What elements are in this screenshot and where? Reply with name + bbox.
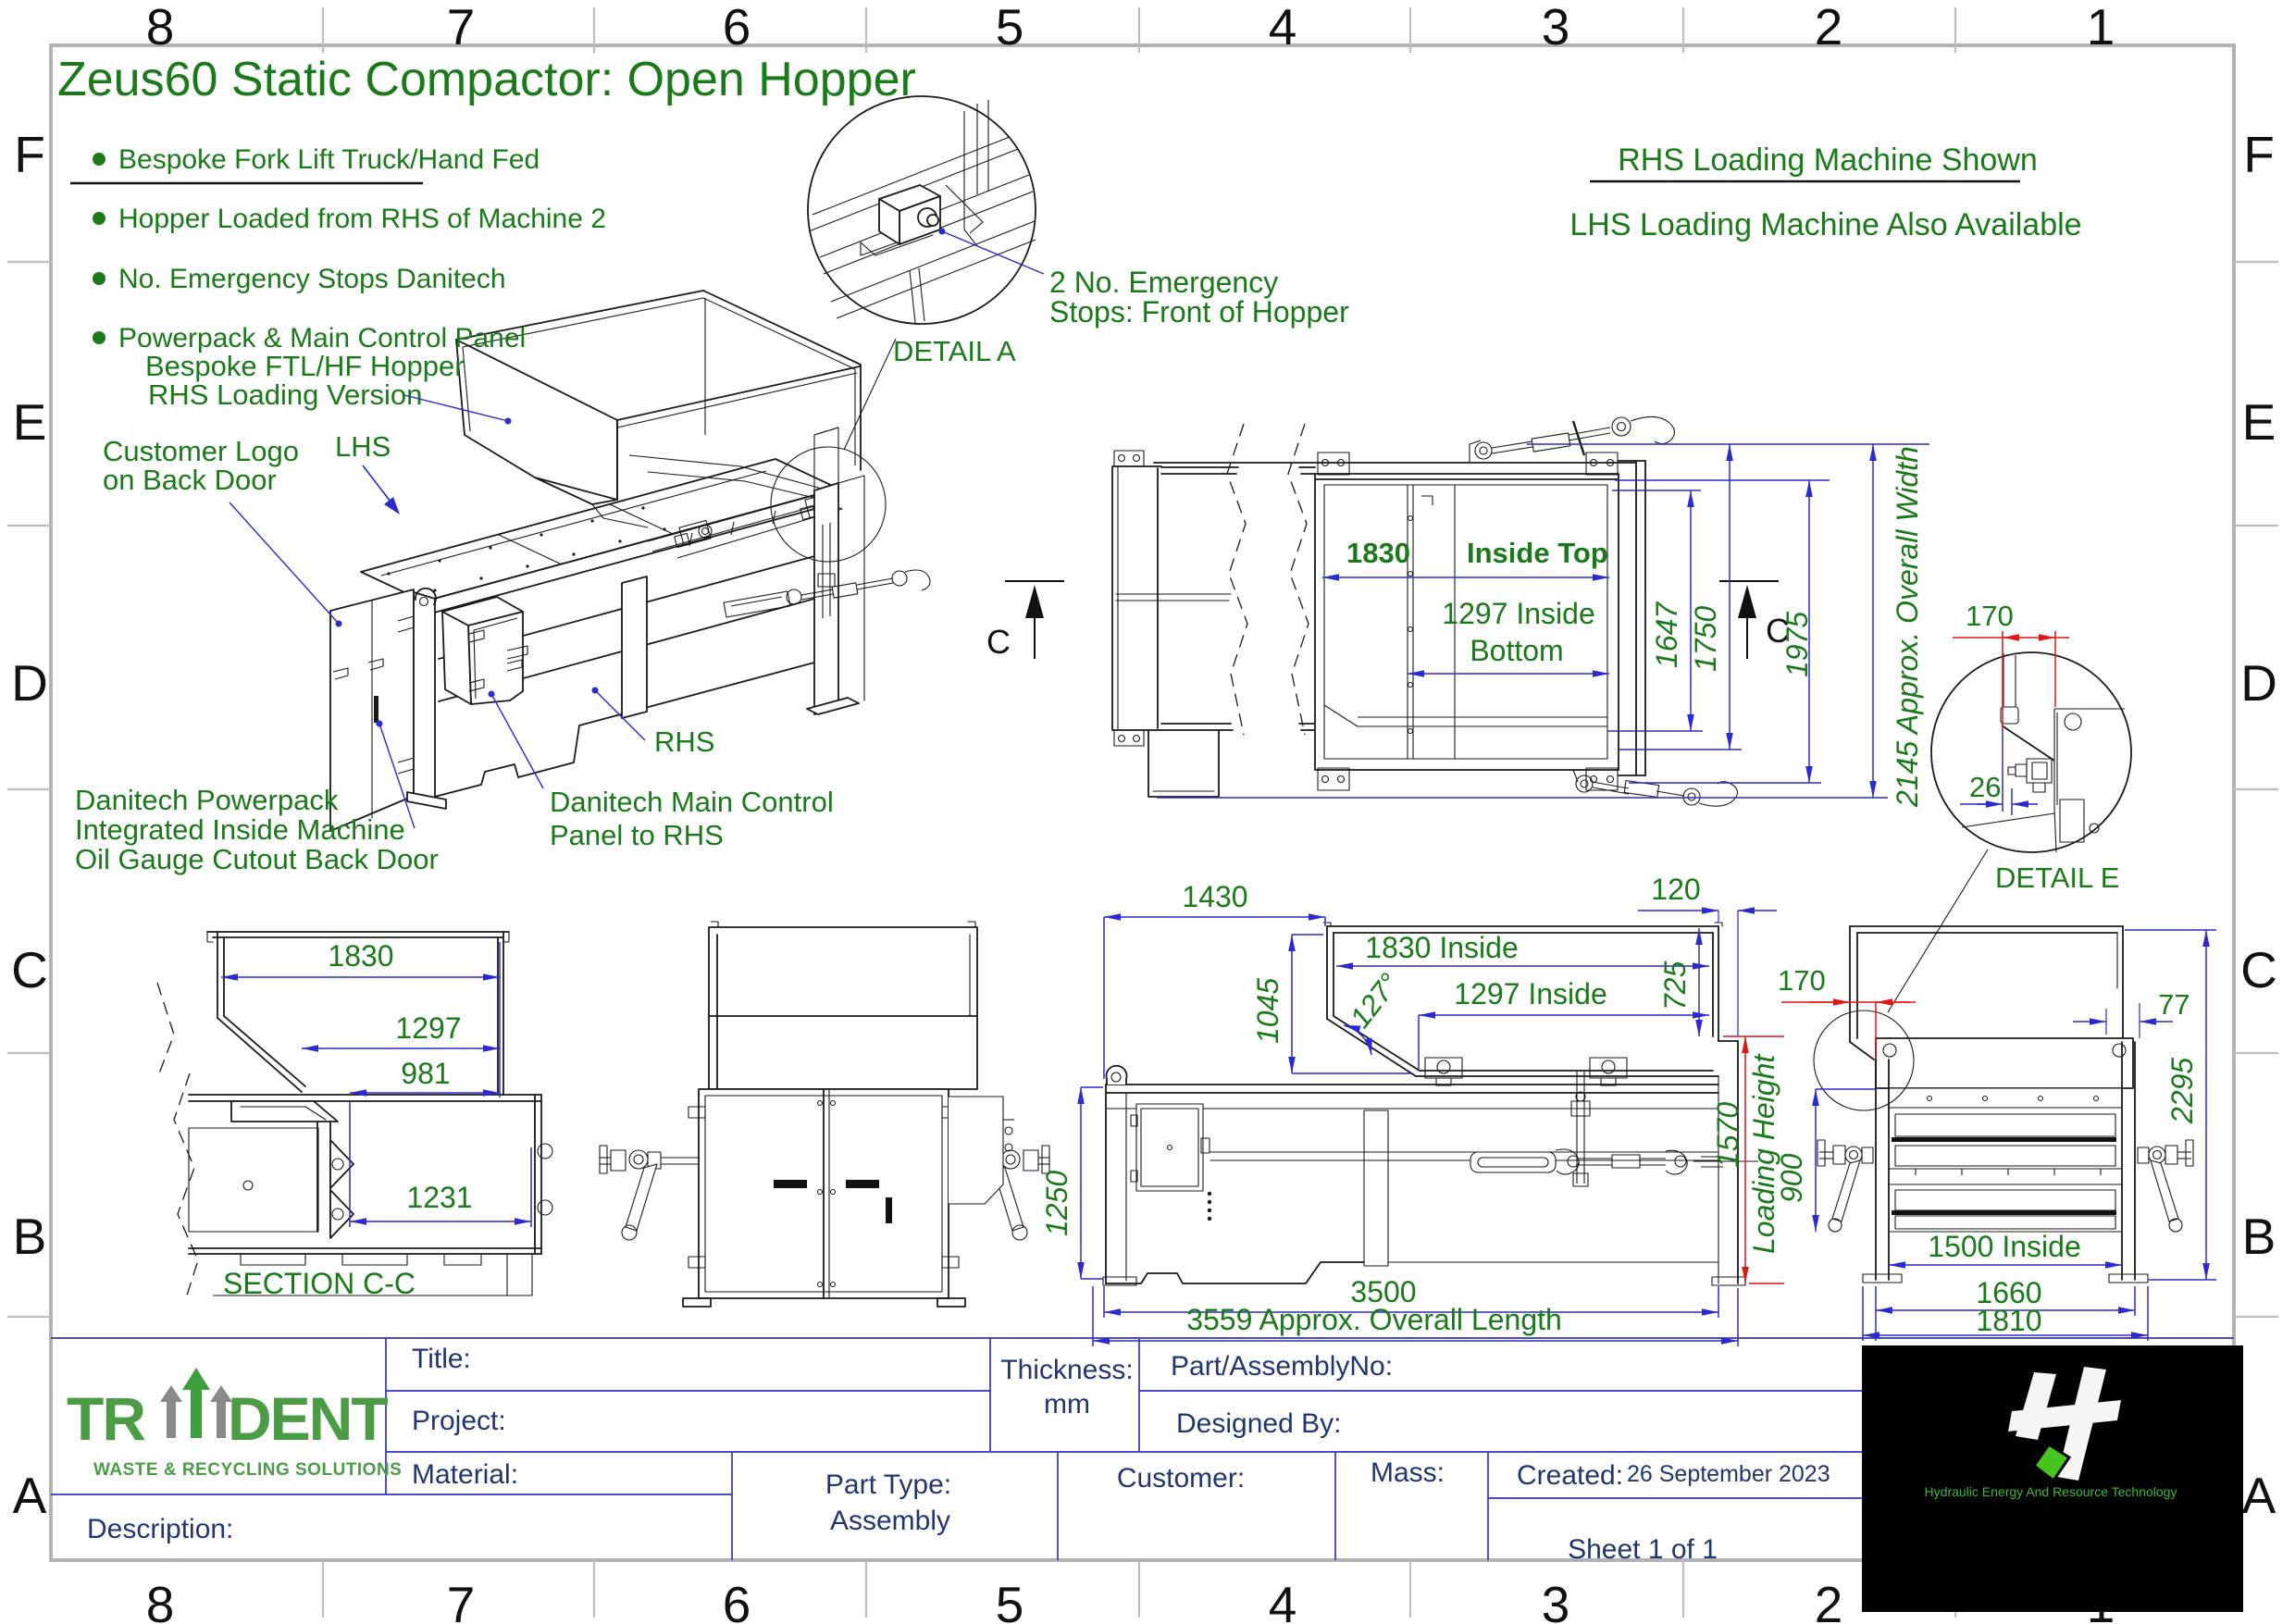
svg-text:1430: 1430: [1182, 880, 1247, 913]
svg-text:4: 4: [1269, 1576, 1297, 1624]
svg-text:Assembly: Assembly: [830, 1506, 950, 1536]
svg-text:Zeus60 Static Compactor: Open: Zeus60 Static Compactor: Open Hopper: [57, 53, 916, 106]
svg-text:B: B: [13, 1208, 47, 1265]
svg-text:Project:: Project:: [412, 1406, 506, 1436]
svg-text:No. Emergency Stops Danitech: No. Emergency Stops Danitech: [118, 264, 506, 294]
svg-text:725: 725: [1658, 961, 1692, 1010]
svg-text:1231: 1231: [406, 1181, 472, 1214]
svg-text:Hopper Loaded from RHS of Mach: Hopper Loaded from RHS of Machine 2: [118, 204, 606, 234]
svg-text:Danitech Powerpack: Danitech Powerpack: [75, 784, 339, 816]
svg-text:mm: mm: [1044, 1389, 1090, 1419]
svg-text:981: 981: [401, 1057, 450, 1090]
svg-text:5: 5: [996, 1576, 1024, 1624]
svg-text:Title:: Title:: [412, 1344, 471, 1374]
svg-text:LHS: LHS: [335, 430, 391, 463]
svg-text:Created:: Created:: [1517, 1460, 1623, 1491]
svg-text:1500 Inside: 1500 Inside: [1928, 1230, 2080, 1263]
svg-text:RHS: RHS: [654, 725, 714, 758]
svg-text:TR: TR: [67, 1384, 145, 1453]
svg-text:Thickness:: Thickness:: [1000, 1355, 1133, 1385]
svg-text:A: A: [13, 1467, 47, 1524]
svg-text:C: C: [11, 941, 48, 998]
svg-text:B: B: [2242, 1208, 2276, 1265]
svg-text:6: 6: [723, 0, 751, 56]
svg-text:6: 6: [723, 1576, 751, 1624]
svg-text:Description:: Description:: [87, 1514, 233, 1544]
svg-text:Hydraulic Energy And Resource: Hydraulic Energy And Resource Technology: [1925, 1484, 2177, 1499]
svg-text:2295: 2295: [2165, 1058, 2199, 1124]
svg-text:Customer Logo: Customer Logo: [103, 435, 299, 467]
svg-text:3559 Approx. Overall Length: 3559 Approx. Overall Length: [1186, 1303, 1562, 1336]
svg-text:Part Type:: Part Type:: [825, 1469, 951, 1500]
svg-text:2 No. Emergency: 2 No. Emergency: [1049, 266, 1278, 299]
svg-text:4: 4: [1269, 0, 1297, 56]
svg-text:120: 120: [1651, 873, 1700, 906]
svg-text:Material:: Material:: [412, 1459, 518, 1490]
svg-text:Bespoke FTL/HF Hopper: Bespoke FTL/HF Hopper: [145, 350, 465, 382]
svg-text:900: 900: [1775, 1153, 1808, 1203]
svg-text:A: A: [2242, 1467, 2276, 1524]
svg-text:Stops: Front of Hopper: Stops: Front of Hopper: [1049, 295, 1349, 329]
svg-text:5: 5: [996, 0, 1024, 56]
svg-text:1750: 1750: [1689, 606, 1722, 672]
svg-text:Designed By:: Designed By:: [1176, 1408, 1341, 1439]
svg-text:1830: 1830: [328, 939, 393, 973]
svg-text:Panel to RHS: Panel to RHS: [550, 819, 724, 851]
svg-text:F: F: [14, 126, 45, 183]
svg-text:Oil Gauge Cutout Back Door: Oil Gauge Cutout Back Door: [75, 843, 439, 875]
svg-text:8: 8: [146, 0, 175, 56]
svg-text:Integrated Inside Machine: Integrated Inside Machine: [75, 813, 405, 846]
svg-text:Danitech Main Control: Danitech Main Control: [550, 786, 834, 818]
svg-text:D: D: [11, 654, 48, 712]
svg-text:RHS Loading Machine Shown: RHS Loading Machine Shown: [1618, 143, 2038, 178]
svg-text:1297 Inside: 1297 Inside: [1454, 977, 1606, 1010]
svg-text:WASTE & RECYCLING SOLUTIONS: WASTE & RECYCLING SOLUTIONS: [93, 1460, 402, 1480]
svg-text:Customer:: Customer:: [1117, 1463, 1245, 1494]
svg-text:1830: 1830: [1346, 537, 1410, 569]
svg-text:DETAIL A: DETAIL A: [893, 335, 1016, 367]
svg-text:1830 Inside: 1830 Inside: [1365, 931, 1518, 964]
svg-text:C: C: [2240, 941, 2277, 998]
svg-text:1045: 1045: [1251, 978, 1284, 1044]
svg-text:DENT: DENT: [228, 1384, 388, 1453]
svg-text:2: 2: [1815, 1576, 1843, 1624]
svg-text:on Back Door: on Back Door: [103, 464, 277, 496]
svg-text:Powerpack & Main Control Panel: Powerpack & Main Control Panel: [118, 323, 526, 353]
svg-text:C: C: [986, 623, 1011, 661]
svg-text:7: 7: [447, 0, 476, 56]
svg-text:2145 Approx. Overall Width: 2145 Approx. Overall Width: [1891, 446, 1924, 808]
svg-text:1975: 1975: [1780, 612, 1814, 677]
svg-text:1: 1: [2087, 0, 2115, 56]
svg-text:Bottom: Bottom: [1470, 634, 1563, 667]
svg-text:1810: 1810: [1976, 1304, 2041, 1337]
svg-text:E: E: [2242, 393, 2276, 451]
svg-text:7: 7: [447, 1576, 476, 1624]
svg-text:3: 3: [1542, 0, 1570, 56]
svg-text:Mass:: Mass:: [1371, 1457, 1445, 1488]
svg-text:D: D: [2240, 654, 2277, 712]
svg-text:1647: 1647: [1650, 601, 1683, 668]
svg-text:8: 8: [146, 1576, 175, 1624]
svg-text:Sheet 1 of 1: Sheet 1 of 1: [1568, 1534, 1718, 1565]
svg-text:26 September 2023: 26 September 2023: [1627, 1461, 1830, 1487]
svg-text:1250: 1250: [1040, 1171, 1073, 1236]
svg-text:170: 170: [1966, 600, 2014, 632]
svg-text:1297 Inside: 1297 Inside: [1442, 597, 1594, 630]
svg-text:170: 170: [1778, 964, 1826, 997]
svg-text:3: 3: [1542, 1576, 1570, 1624]
svg-text:E: E: [13, 393, 47, 451]
svg-text:SECTION C-C: SECTION C-C: [223, 1267, 416, 1300]
svg-text:Bespoke Fork Lift Truck/Hand F: Bespoke Fork Lift Truck/Hand Fed: [118, 144, 540, 175]
svg-text:1570: 1570: [1711, 1102, 1744, 1168]
svg-text:LHS Loading Machine Also Avail: LHS Loading Machine Also Available: [1569, 207, 2081, 242]
svg-text:1297: 1297: [395, 1011, 461, 1045]
svg-text:2: 2: [1815, 0, 1843, 56]
svg-text:RHS Loading Version: RHS Loading Version: [148, 378, 422, 411]
svg-text:Inside Top: Inside Top: [1467, 537, 1608, 569]
svg-text:F: F: [2243, 126, 2275, 183]
svg-text:DETAIL E: DETAIL E: [1995, 862, 2119, 894]
svg-text:Part/AssemblyNo:: Part/AssemblyNo:: [1171, 1351, 1393, 1382]
svg-text:77: 77: [2158, 988, 2190, 1021]
svg-text:26: 26: [1969, 771, 2001, 803]
